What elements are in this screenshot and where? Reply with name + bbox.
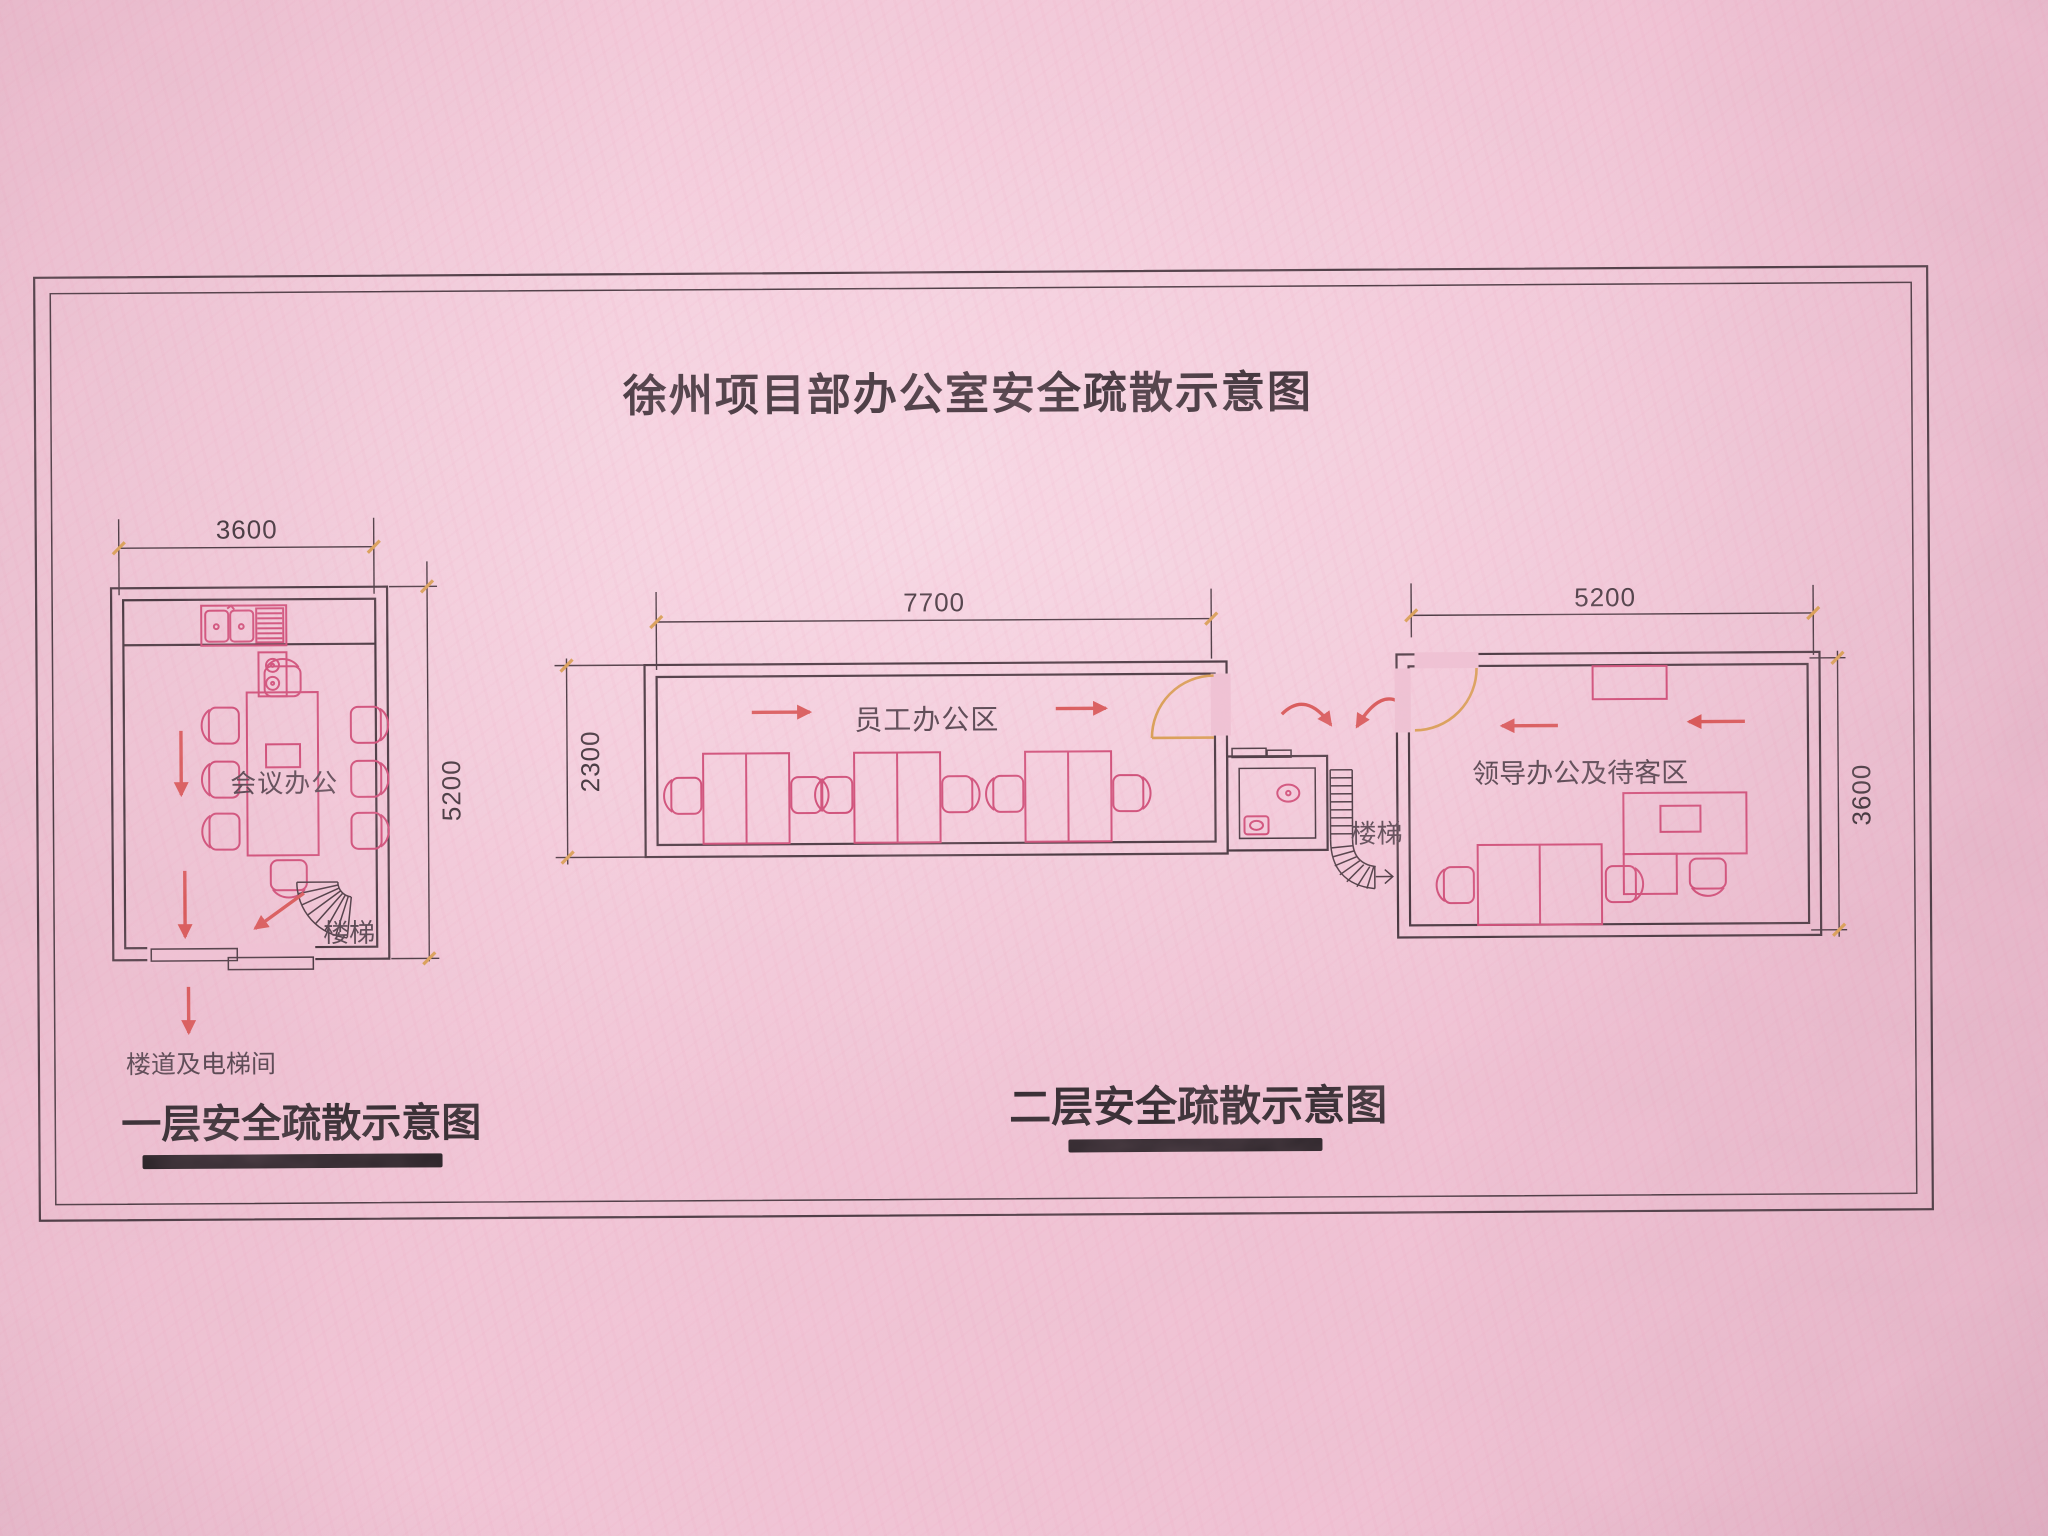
- corridor-elevator-label: 楼道及电梯间: [123, 1044, 279, 1081]
- drawing-title: 徐州项目部办公室安全疏散示意图: [606, 356, 1330, 424]
- stairs-label-floor1: 楼梯: [317, 913, 381, 950]
- dim-leader-height: 3600: [1846, 755, 1872, 835]
- converging-evacuation-arrows: [1282, 699, 1404, 727]
- leader-desks: [1436, 792, 1747, 925]
- floor1-heading-underline: [143, 1153, 443, 1169]
- dim-staff-height: 2300: [575, 721, 601, 801]
- toilet-fixtures: [1244, 785, 1299, 835]
- drawing-sheet: 徐州项目部办公室安全疏散示意图 3600 5200 会议办公 楼梯 楼道及电梯间…: [0, 0, 2048, 1536]
- dim-staff-width: 7700: [884, 587, 984, 619]
- dim-floor1-width: 3600: [208, 514, 286, 545]
- sink-counter: [201, 605, 286, 646]
- floor1-heading: 一层安全疏散示意图: [118, 1090, 484, 1150]
- floor1-dimensions: [113, 517, 440, 966]
- staff-room-door: [1152, 676, 1214, 738]
- dim-leader-width: 5200: [1555, 582, 1655, 614]
- staff-desks: [664, 751, 1151, 844]
- leader-room-door: [1415, 668, 1477, 730]
- evacuation-arrows-leader: [1502, 721, 1745, 725]
- floor2-vestibule: [1227, 699, 1405, 890]
- floor2-heading: 二层安全疏散示意图: [998, 1071, 1398, 1134]
- staff-room-label: 员工办公区: [851, 698, 1003, 739]
- floor2-heading-underline: [1068, 1138, 1322, 1153]
- wall-cabinet: [1593, 666, 1667, 699]
- leader-room-label: 领导办公及待客区: [1466, 751, 1694, 791]
- photo-of-evacuation-plan: 徐州项目部办公室安全疏散示意图 3600 5200 会议办公 楼梯 楼道及电梯间…: [0, 0, 2048, 1536]
- stairs-label-floor2: 楼梯: [1344, 813, 1408, 850]
- meeting-room-label: 会议办公: [182, 763, 386, 801]
- dim-floor1-height: 5200: [436, 750, 462, 830]
